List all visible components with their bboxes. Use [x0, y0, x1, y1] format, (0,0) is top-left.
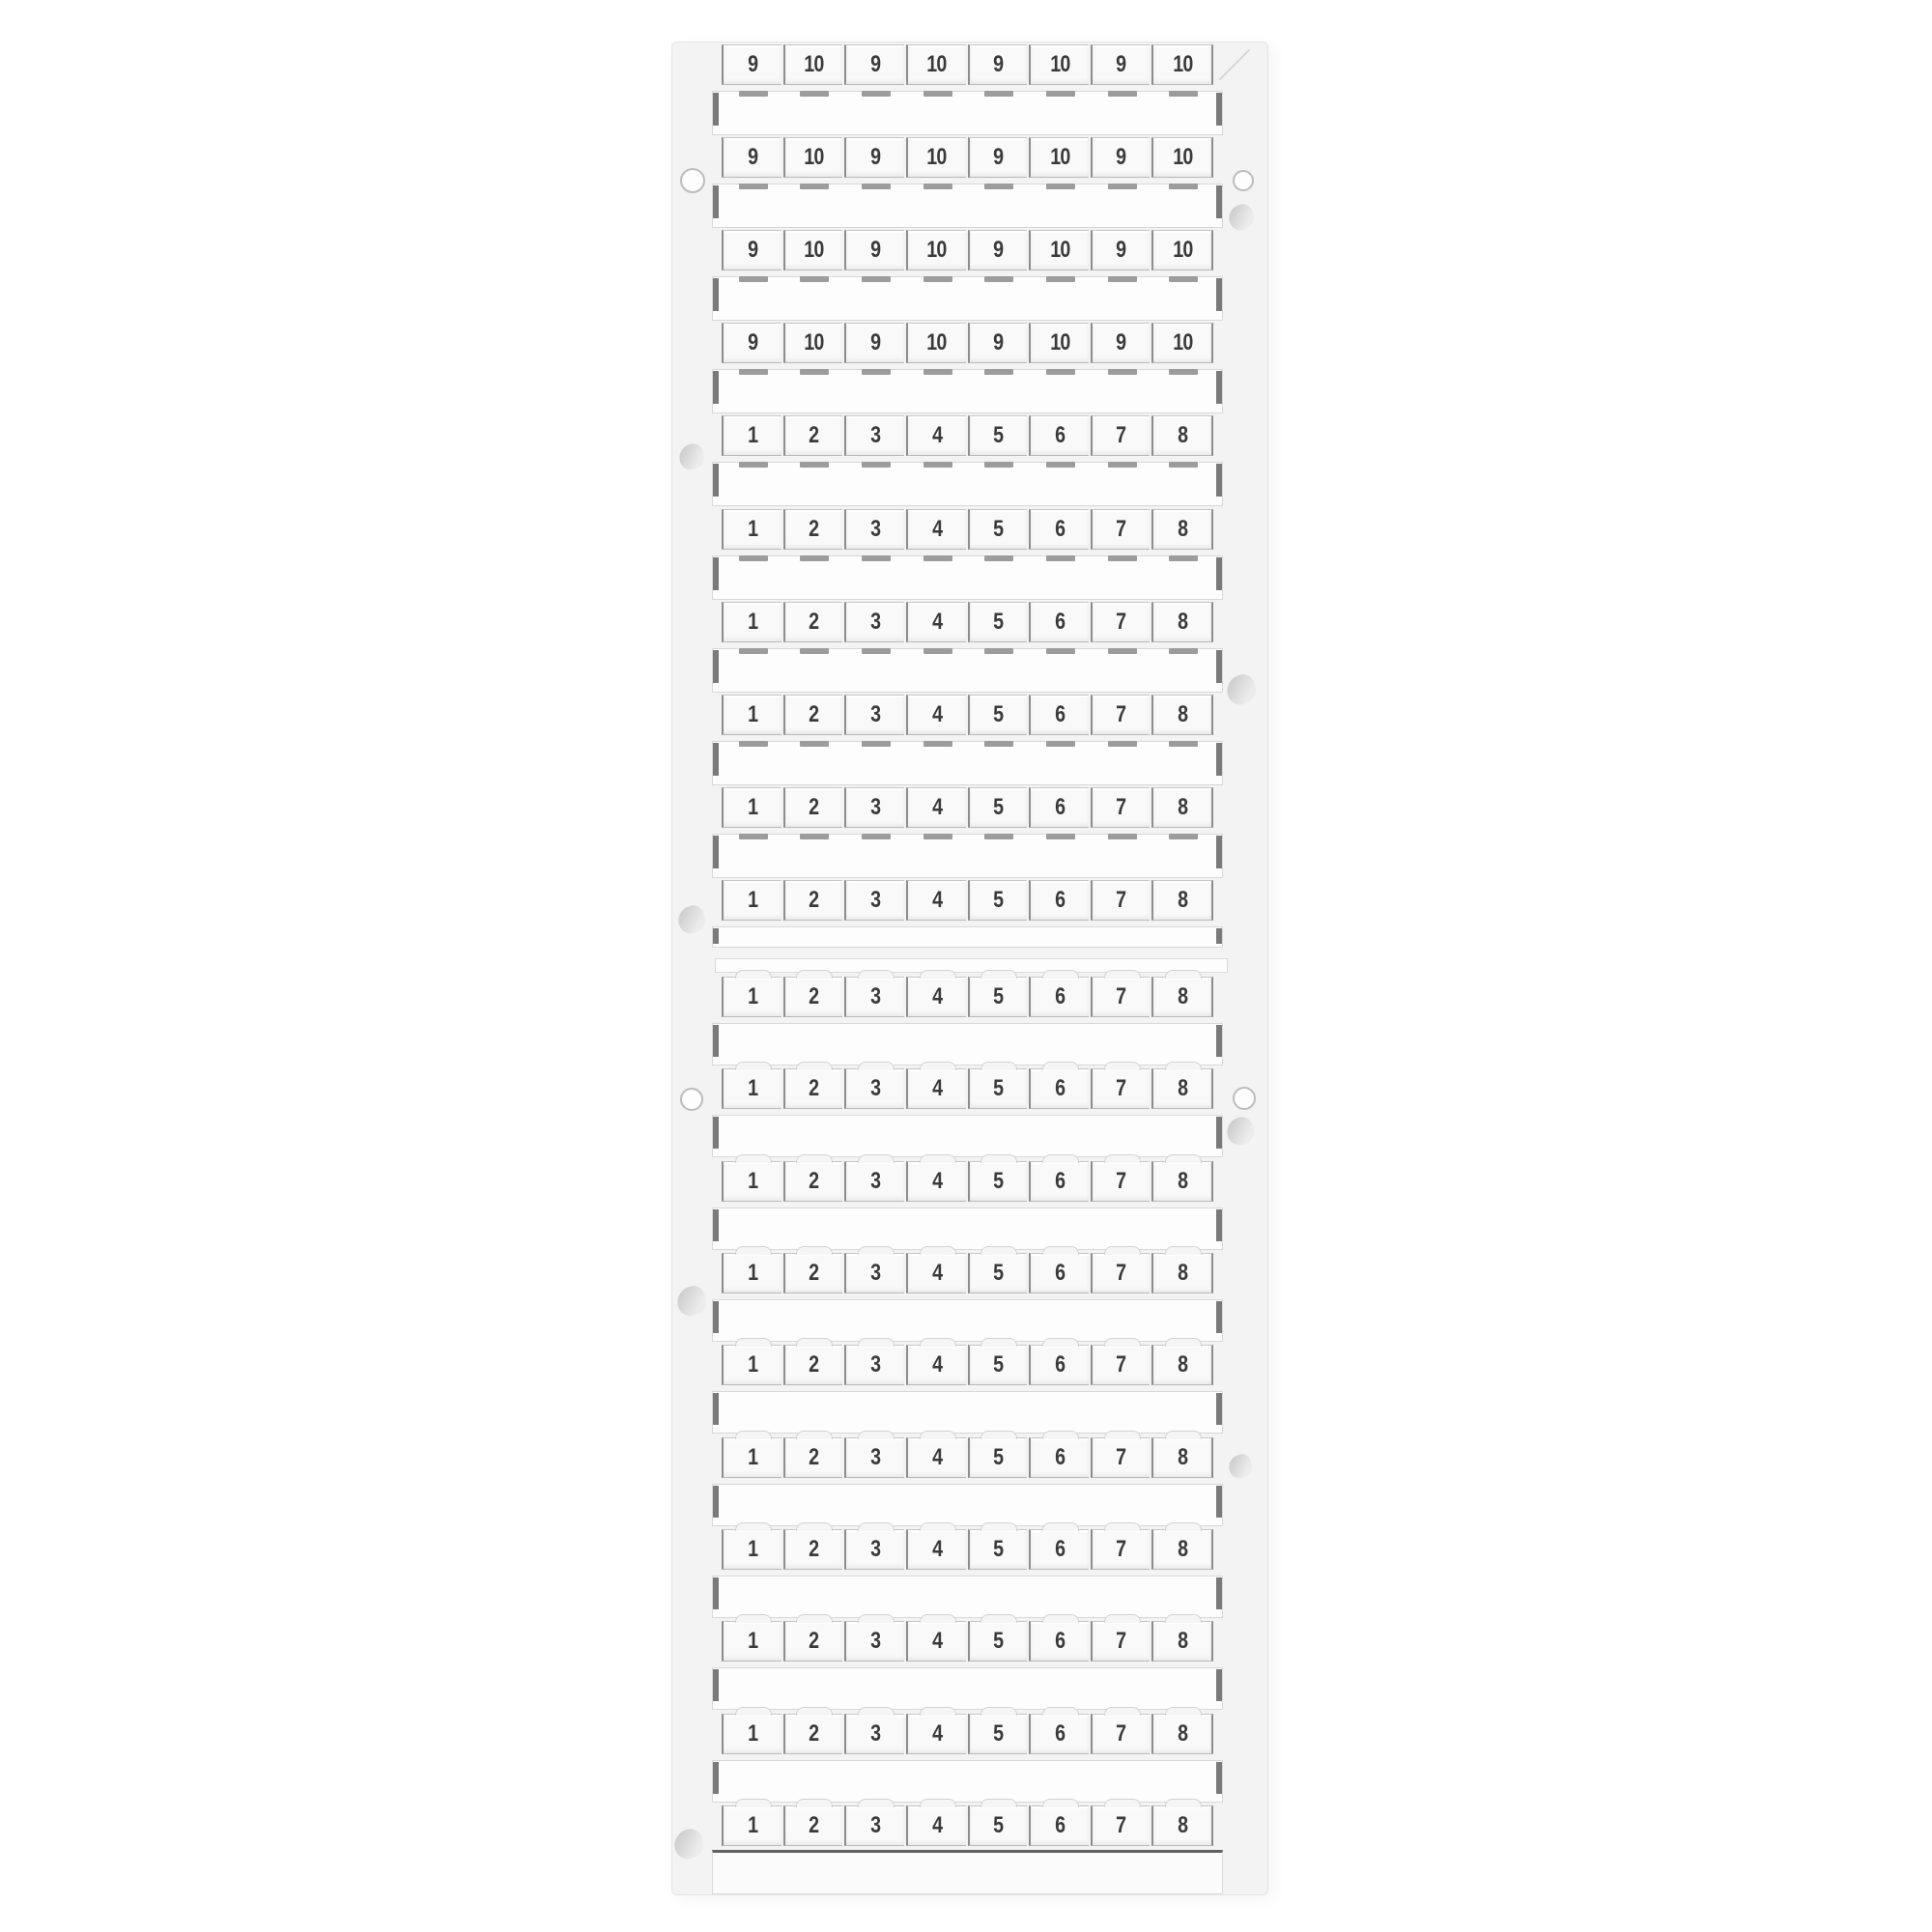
mounting-hole [1223, 1114, 1257, 1148]
marker-tag: 6 [1029, 1253, 1089, 1293]
marker-row: 12345678 [722, 1805, 1213, 1846]
marker-tag: 8 [1151, 1345, 1213, 1385]
marker-tag: 3 [844, 1161, 904, 1202]
marker-tag: 9 [1091, 323, 1151, 363]
breakoff-nub [984, 369, 1013, 375]
marker-row: 12345678 [722, 1529, 1213, 1570]
marker-tag-label: 5 [993, 796, 1003, 819]
marker-tag: 1 [722, 787, 781, 828]
marker-tag: 6 [1029, 787, 1089, 828]
card-top-rail [715, 958, 1228, 973]
breakoff-nub [1169, 184, 1198, 189]
breakoff-nub [1046, 91, 1075, 97]
marker-tag: 3 [844, 1345, 904, 1385]
marker-tag-label: 2 [809, 1814, 818, 1837]
marker-row: 12345678 [722, 787, 1213, 828]
marker-tag-label: 8 [1178, 1262, 1187, 1285]
mounting-hole [680, 1088, 703, 1111]
marker-tag: 5 [968, 977, 1028, 1017]
marker-tag: 4 [906, 602, 966, 642]
carrier-strip [712, 1207, 1223, 1250]
marker-tag-label: 2 [809, 424, 818, 447]
marker-tag-label: 4 [932, 889, 942, 912]
marker-tag-label: 6 [1055, 1170, 1065, 1193]
marker-tag-label: 2 [809, 1538, 818, 1561]
marker-tag-label: 2 [809, 1353, 818, 1377]
breakoff-nub [800, 555, 829, 561]
breakoff-nub [739, 834, 768, 839]
marker-tag: 6 [1029, 695, 1089, 735]
marker-row: 12345678 [722, 1161, 1213, 1202]
mounting-hole [1233, 1087, 1256, 1110]
carrier-strip [712, 369, 1223, 413]
marker-tag-label: 3 [870, 1170, 880, 1193]
marker-tag: 7 [1091, 1068, 1151, 1109]
marker-tag-label: 8 [1178, 1630, 1187, 1653]
marker-tag: 7 [1091, 880, 1151, 921]
marker-tag-label: 10 [927, 53, 947, 76]
marker-tag: 4 [906, 1621, 966, 1662]
marker-tag: 5 [968, 1161, 1028, 1202]
marker-tag-label: 2 [809, 1170, 818, 1193]
marker-tag-label: 6 [1055, 611, 1065, 634]
marker-tag: 2 [783, 1805, 843, 1846]
marker-tag-label: 6 [1055, 1262, 1065, 1285]
marker-tag-label: 9 [870, 53, 880, 76]
marker-row: 12345678 [722, 1437, 1213, 1478]
marker-tag: 1 [722, 1437, 781, 1478]
marker-tag-label: 10 [927, 239, 947, 262]
marker-tag: 10 [1029, 230, 1089, 270]
marker-tag-label: 10 [1173, 146, 1192, 169]
marker-tag-label: 1 [748, 1814, 757, 1837]
marker-tag: 10 [783, 137, 843, 178]
marker-tag-label: 10 [804, 239, 823, 262]
breakoff-nub [1169, 276, 1198, 282]
marker-row: 12345678 [722, 509, 1213, 550]
marker-tag-label: 8 [1178, 611, 1187, 634]
marker-row: 12345678 [722, 977, 1213, 1017]
marker-tag: 3 [844, 1253, 904, 1293]
breakoff-nub [1046, 648, 1075, 654]
marker-tag-label: 4 [932, 1262, 942, 1285]
marker-tag-label: 1 [748, 1353, 757, 1377]
marker-tag-label: 7 [1116, 1630, 1125, 1653]
marker-tag: 5 [968, 1714, 1028, 1754]
carrier-strip [712, 555, 1223, 600]
marker-tag: 1 [722, 1068, 781, 1109]
marker-tag-label: 2 [809, 1262, 818, 1285]
marker-tag-label: 10 [1050, 239, 1069, 262]
marker-tag: 7 [1091, 1345, 1151, 1385]
breakoff-nub [1108, 276, 1137, 282]
marker-tag-label: 6 [1055, 889, 1065, 912]
breakoff-nub [923, 834, 952, 839]
breakoff-nub [800, 91, 829, 97]
marker-tag-label: 2 [809, 611, 818, 634]
marker-tag-label: 8 [1178, 1722, 1187, 1746]
carrier-strip [712, 1667, 1223, 1710]
marker-tag-label: 1 [748, 1722, 757, 1746]
marker-tag: 6 [1029, 1714, 1089, 1754]
marker-tag: 7 [1091, 602, 1151, 642]
marker-tag: 2 [783, 1253, 843, 1293]
marker-tag: 6 [1029, 509, 1089, 550]
marker-tag-label: 8 [1178, 1814, 1187, 1837]
marker-tag-label: 2 [809, 1077, 818, 1100]
marker-tag-label: 9 [993, 239, 1003, 262]
marker-tag-label: 5 [993, 703, 1003, 726]
marker-tag: 3 [844, 1068, 904, 1109]
marker-tag-label: 2 [809, 703, 818, 726]
breakoff-nub [862, 462, 891, 468]
marker-tag-label: 8 [1178, 518, 1187, 541]
carrier-strip [712, 1760, 1223, 1803]
breakoff-nub [739, 741, 768, 747]
marker-tag: 6 [1029, 415, 1089, 456]
marker-tag: 6 [1029, 977, 1089, 1017]
marker-tag-label: 4 [932, 796, 942, 819]
marker-tag-label: 9 [1116, 146, 1125, 169]
marker-tag-label: 4 [932, 703, 942, 726]
marker-card-frame: 9109109109109109109109109109109109109109… [671, 42, 1268, 1895]
marker-tag: 4 [906, 1068, 966, 1109]
marker-tag: 3 [844, 880, 904, 921]
corner-chamfer [1219, 49, 1251, 81]
marker-tag: 1 [722, 509, 781, 550]
breakoff-nub [923, 741, 952, 747]
marker-tag-label: 6 [1055, 985, 1065, 1009]
marker-tag: 4 [906, 415, 966, 456]
marker-tag: 9 [968, 323, 1028, 363]
marker-tag-label: 7 [1116, 985, 1125, 1009]
breakoff-nub [862, 834, 891, 839]
marker-tag: 8 [1151, 977, 1213, 1017]
marker-tag-label: 5 [993, 518, 1003, 541]
breakoff-nub [984, 741, 1013, 747]
marker-tag: 7 [1091, 977, 1151, 1017]
breakoff-nub [1108, 555, 1137, 561]
breakoff-nub [1108, 91, 1137, 97]
marker-tag: 2 [783, 415, 843, 456]
breakoff-nub [1108, 741, 1137, 747]
marker-tag: 5 [968, 880, 1028, 921]
marker-tag-label: 6 [1055, 796, 1065, 819]
marker-tag-label: 8 [1178, 1446, 1187, 1469]
marker-tag: 3 [844, 1805, 904, 1846]
marker-tag-label: 9 [1116, 331, 1125, 355]
marker-tag: 9 [722, 323, 781, 363]
marker-tag-label: 4 [932, 1538, 942, 1561]
breakoff-nub [984, 462, 1013, 468]
marker-tag: 8 [1151, 1805, 1213, 1846]
marker-tag: 4 [906, 1529, 966, 1570]
marker-tag: 10 [1151, 137, 1213, 178]
breakoff-nub [1108, 369, 1137, 375]
carrier-strip [712, 184, 1223, 228]
carrier-strip [712, 1391, 1223, 1434]
breakoff-nub [1169, 555, 1198, 561]
marker-tag-label: 7 [1116, 1446, 1125, 1469]
marker-tag-label: 10 [1050, 146, 1069, 169]
marker-tag-label: 8 [1178, 1538, 1187, 1561]
marker-tag-label: 2 [809, 1446, 818, 1469]
marker-tag: 4 [906, 1161, 966, 1202]
marker-tag: 5 [968, 695, 1028, 735]
marker-tag: 7 [1091, 1805, 1151, 1846]
marker-tag: 3 [844, 602, 904, 642]
marker-tag-label: 1 [748, 518, 757, 541]
marker-tag-label: 9 [993, 331, 1003, 355]
marker-tag: 7 [1091, 1161, 1151, 1202]
breakoff-nub [1169, 834, 1198, 839]
breakoff-nub [862, 184, 891, 189]
marker-tag-label: 1 [748, 424, 757, 447]
marker-tag-label: 3 [870, 889, 880, 912]
breakoff-nub [800, 276, 829, 282]
marker-tag: 8 [1151, 695, 1213, 735]
breakoff-nub [1046, 741, 1075, 747]
marker-tag-label: 1 [748, 889, 757, 912]
marker-row: 12345678 [722, 1621, 1213, 1662]
marker-tag-label: 10 [804, 146, 823, 169]
mounting-hole [1226, 202, 1258, 234]
carrier-strip [712, 1115, 1223, 1157]
breakoff-nub [800, 462, 829, 468]
marker-tag: 8 [1151, 787, 1213, 828]
marker-tag: 4 [906, 1345, 966, 1385]
marker-tag-label: 8 [1178, 796, 1187, 819]
marker-tag-label: 5 [993, 1262, 1003, 1285]
marker-tag: 1 [722, 1621, 781, 1662]
marker-tag-label: 5 [993, 889, 1003, 912]
marker-tag: 3 [844, 509, 904, 550]
marker-tag: 6 [1029, 1161, 1089, 1202]
marker-tag: 4 [906, 1253, 966, 1293]
marker-tag: 9 [1091, 44, 1151, 85]
marker-tag: 7 [1091, 1714, 1151, 1754]
marker-tag-label: 8 [1178, 889, 1187, 912]
marker-tag: 10 [906, 44, 966, 85]
marker-tag-label: 9 [748, 331, 757, 355]
marker-tag: 2 [783, 880, 843, 921]
marker-tag: 7 [1091, 695, 1151, 735]
marker-tag-label: 10 [1173, 239, 1192, 262]
marker-tag: 4 [906, 977, 966, 1017]
marker-tag: 8 [1151, 1621, 1213, 1662]
breakoff-nub [800, 184, 829, 189]
breakoff-nub [862, 369, 891, 375]
marker-tag: 3 [844, 787, 904, 828]
carrier-strip [712, 1576, 1223, 1618]
marker-tag-label: 6 [1055, 424, 1065, 447]
marker-row: 910910910910 [722, 137, 1213, 178]
breakoff-nub [862, 555, 891, 561]
breakoff-nub [923, 369, 952, 375]
marker-tag-label: 7 [1116, 1722, 1125, 1746]
marker-tag: 4 [906, 787, 966, 828]
marker-tag: 7 [1091, 1621, 1151, 1662]
marker-tag-label: 10 [927, 331, 947, 355]
marker-row: 12345678 [722, 1345, 1213, 1385]
marker-tag: 2 [783, 509, 843, 550]
marker-tag: 8 [1151, 1068, 1213, 1109]
marker-tag: 7 [1091, 787, 1151, 828]
breakoff-nub [739, 555, 768, 561]
carrier-strip [712, 834, 1223, 878]
carrier-strip [712, 741, 1223, 785]
marker-tag-label: 10 [1050, 331, 1069, 355]
marker-tag: 4 [906, 695, 966, 735]
marker-tag: 9 [1091, 137, 1151, 178]
marker-tag-label: 1 [748, 1077, 757, 1100]
marker-tag-label: 3 [870, 424, 880, 447]
marker-tag-label: 2 [809, 518, 818, 541]
marker-tag-label: 9 [993, 146, 1003, 169]
breakoff-nub [1108, 462, 1137, 468]
breakoff-nub [1046, 834, 1075, 839]
marker-row: 12345678 [722, 695, 1213, 735]
marker-tag: 7 [1091, 1253, 1151, 1293]
breakoff-nub [1169, 91, 1198, 97]
marker-tag-label: 7 [1116, 1077, 1125, 1100]
marker-tag-label: 6 [1055, 518, 1065, 541]
marker-tag: 3 [844, 1714, 904, 1754]
breakoff-nub [739, 369, 768, 375]
breakoff-nub [862, 648, 891, 654]
marker-tag-label: 8 [1178, 424, 1187, 447]
marker-tag-label: 9 [870, 239, 880, 262]
marker-tag: 4 [906, 880, 966, 921]
marker-tag-label: 6 [1055, 1353, 1065, 1377]
marker-tag: 1 [722, 695, 781, 735]
marker-tag-label: 10 [804, 53, 823, 76]
marker-tag: 2 [783, 787, 843, 828]
breakoff-nub [923, 555, 952, 561]
marker-tag: 10 [1151, 44, 1213, 85]
breakoff-nub [923, 91, 952, 97]
marker-tag: 6 [1029, 880, 1089, 921]
marker-tag: 6 [1029, 1621, 1089, 1662]
breakoff-nub [923, 462, 952, 468]
marker-tag: 1 [722, 415, 781, 456]
marker-tag-label: 7 [1116, 1814, 1125, 1837]
breakoff-nub [1046, 369, 1075, 375]
marker-row: 12345678 [722, 415, 1213, 456]
breakoff-nub [984, 555, 1013, 561]
marker-tag: 2 [783, 1621, 843, 1662]
marker-tag-label: 7 [1116, 796, 1125, 819]
marker-tag: 9 [722, 44, 781, 85]
marker-tag-label: 1 [748, 703, 757, 726]
marker-tag-label: 6 [1055, 1446, 1065, 1469]
marker-tag: 1 [722, 977, 781, 1017]
marker-tag: 9 [968, 44, 1028, 85]
marker-tag: 5 [968, 1529, 1028, 1570]
marker-tag-label: 1 [748, 985, 757, 1009]
marker-tag-label: 5 [993, 1170, 1003, 1193]
marker-tag-label: 7 [1116, 1262, 1125, 1285]
marker-tag-label: 5 [993, 1814, 1003, 1837]
marker-tag-label: 2 [809, 796, 818, 819]
breakoff-nub [739, 462, 768, 468]
marker-tag-label: 8 [1178, 1353, 1187, 1377]
marker-tag-label: 1 [748, 796, 757, 819]
marker-tag: 10 [783, 323, 843, 363]
marker-tag: 1 [722, 602, 781, 642]
marker-tag-label: 5 [993, 1077, 1003, 1100]
marker-tag: 8 [1151, 1714, 1213, 1754]
marker-tag: 8 [1151, 1161, 1213, 1202]
marker-tag: 2 [783, 1068, 843, 1109]
marker-tag: 5 [968, 1345, 1028, 1385]
marker-tag-label: 6 [1055, 703, 1065, 726]
marker-tag-label: 7 [1116, 518, 1125, 541]
carrier-strip [712, 1484, 1223, 1526]
mounting-hole [674, 902, 708, 936]
marker-tag-label: 7 [1116, 424, 1125, 447]
marker-tag: 9 [844, 44, 904, 85]
breakoff-nub [739, 184, 768, 189]
marker-tag: 1 [722, 1805, 781, 1846]
breakoff-nub [1046, 276, 1075, 282]
breakoff-nub [739, 91, 768, 97]
marker-tag: 3 [844, 1529, 904, 1570]
marker-tag-label: 6 [1055, 1722, 1065, 1746]
marker-tag-label: 1 [748, 1446, 757, 1469]
breakoff-nub [984, 648, 1013, 654]
marker-tag-label: 2 [809, 1722, 818, 1746]
marker-tag-label: 2 [809, 985, 818, 1009]
marker-tag: 6 [1029, 1345, 1089, 1385]
marker-tag: 5 [968, 1805, 1028, 1846]
marker-tag: 2 [783, 1161, 843, 1202]
marker-tag: 5 [968, 415, 1028, 456]
marker-tag: 2 [783, 977, 843, 1017]
marker-tag-label: 5 [993, 1446, 1003, 1469]
marker-tag: 7 [1091, 415, 1151, 456]
marker-tag-label: 2 [809, 889, 818, 912]
marker-tag: 9 [844, 137, 904, 178]
marker-tag: 2 [783, 695, 843, 735]
marker-tag: 3 [844, 977, 904, 1017]
marker-tag-label: 6 [1055, 1538, 1065, 1561]
marker-tag: 5 [968, 509, 1028, 550]
marker-tag-label: 1 [748, 611, 757, 634]
breakoff-nub [1169, 369, 1198, 375]
marker-tag-label: 10 [1173, 53, 1192, 76]
marker-tag-label: 7 [1116, 703, 1125, 726]
marker-tag: 9 [844, 230, 904, 270]
marker-tag: 7 [1091, 1529, 1151, 1570]
marker-tag: 3 [844, 1621, 904, 1662]
mounting-hole [1223, 671, 1260, 708]
marker-tag: 5 [968, 1437, 1028, 1478]
marker-tag: 7 [1091, 1437, 1151, 1478]
marker-tag-label: 4 [932, 1353, 942, 1377]
marker-row: 12345678 [722, 1068, 1213, 1109]
marker-tag-label: 9 [748, 239, 757, 262]
mounting-hole [676, 441, 708, 473]
marker-tag-label: 5 [993, 611, 1003, 634]
breakoff-nub [923, 276, 952, 282]
marker-tag: 9 [722, 230, 781, 270]
breakoff-nub [984, 91, 1013, 97]
marker-tag: 10 [906, 137, 966, 178]
marker-tag-label: 4 [932, 1814, 942, 1837]
mounting-hole [670, 1826, 707, 1862]
carrier-strip [712, 1299, 1223, 1342]
